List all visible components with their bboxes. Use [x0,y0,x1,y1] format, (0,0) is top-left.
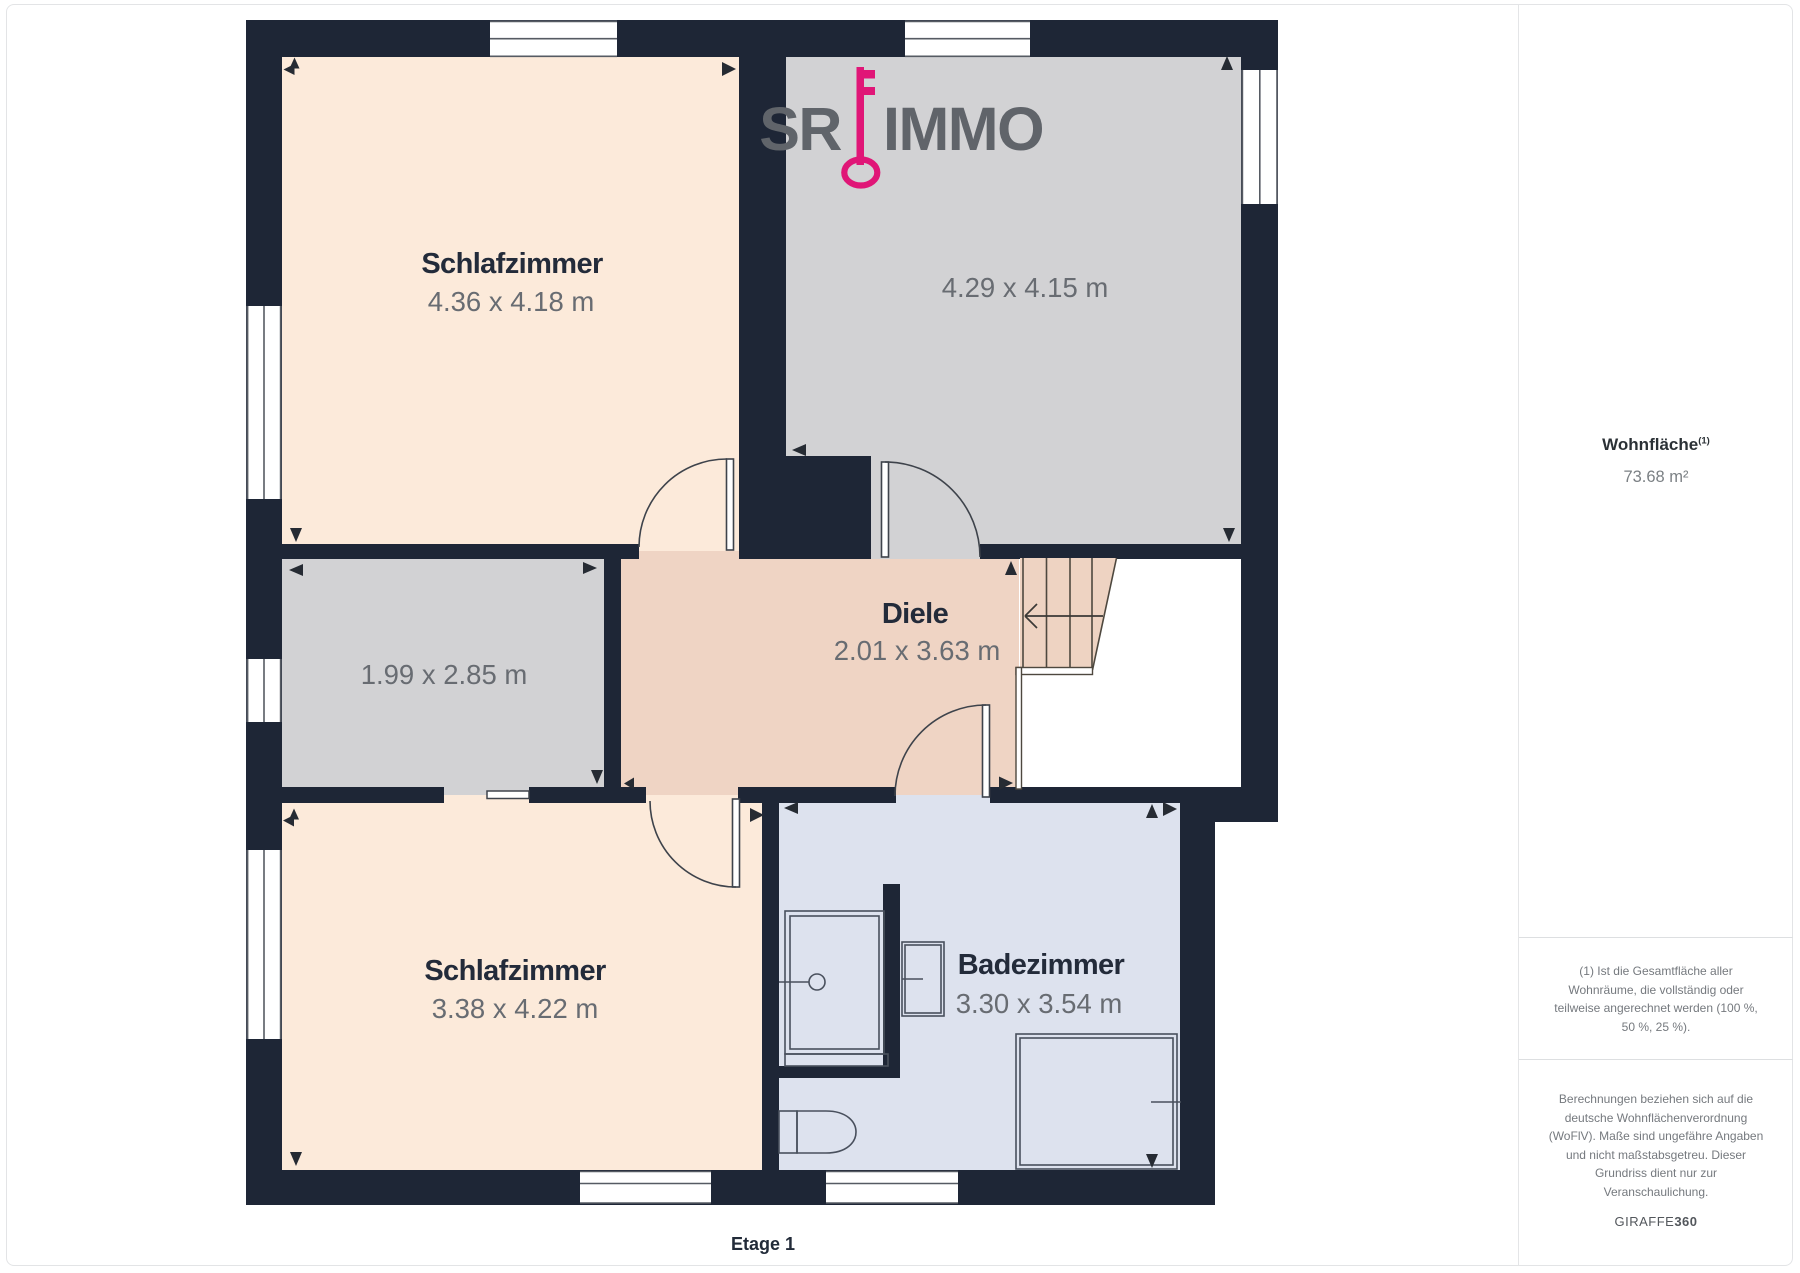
svg-text:3.30 x 3.54 m: 3.30 x 3.54 m [956,988,1123,1019]
svg-text:Badezimmer: Badezimmer [958,949,1125,981]
svg-text:Etage 1: Etage 1 [731,1234,795,1254]
svg-text:2.01 x 3.63 m: 2.01 x 3.63 m [834,635,1001,666]
svg-text:1.99 x 2.85 m: 1.99 x 2.85 m [361,659,528,690]
svg-text:Schlafzimmer: Schlafzimmer [424,955,606,987]
svg-text:Schlafzimmer: Schlafzimmer [421,248,603,280]
svg-text:IMMO: IMMO [883,95,1043,163]
svg-text:3.38 x 4.22 m: 3.38 x 4.22 m [432,993,599,1024]
svg-text:SR: SR [759,95,841,163]
svg-text:Diele: Diele [882,598,949,630]
svg-text:4.29 x 4.15 m: 4.29 x 4.15 m [942,272,1109,303]
svg-text:4.36 x 4.18 m: 4.36 x 4.18 m [428,286,595,317]
